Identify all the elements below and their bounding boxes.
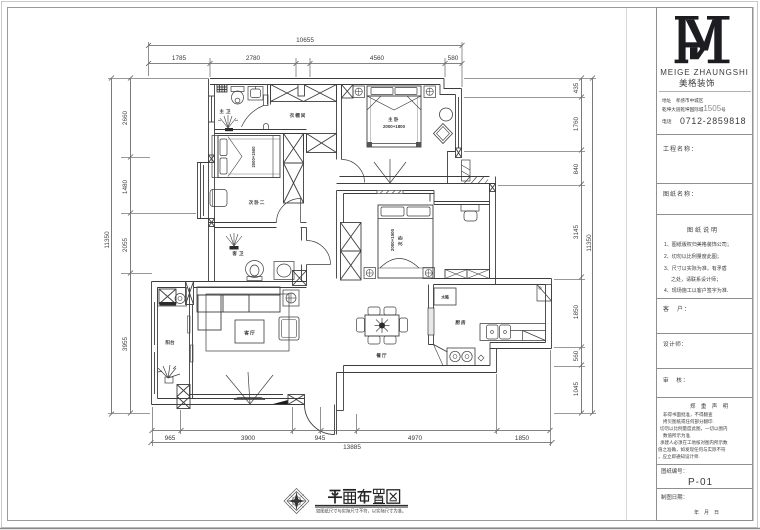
svg-text:945: 945 bbox=[315, 435, 326, 442]
svg-text:非得书面批准，不得翻查: 非得书面批准，不得翻查 bbox=[663, 411, 713, 418]
svg-text:2000+1500: 2000+1500 bbox=[390, 228, 395, 251]
svg-text:1、图纸版权归美格装饰公司；: 1、图纸版权归美格装饰公司； bbox=[664, 241, 732, 248]
svg-text:图纸说明: 图纸说明 bbox=[687, 226, 719, 234]
svg-text:2055: 2055 bbox=[122, 237, 129, 252]
svg-text:P-01: P-01 bbox=[688, 477, 713, 488]
svg-text:0712-2859818: 0712-2859818 bbox=[680, 116, 746, 126]
svg-text:4970: 4970 bbox=[408, 435, 423, 442]
svg-text:4560: 4560 bbox=[370, 55, 385, 62]
svg-text:2、切勿以比例量度此图；: 2、切勿以比例量度此图； bbox=[664, 253, 722, 260]
svg-text:客卫: 客卫 bbox=[231, 250, 245, 257]
svg-text:厨房: 厨房 bbox=[455, 319, 466, 326]
svg-text:图纸名称：: 图纸名称： bbox=[663, 190, 698, 198]
svg-text:13885: 13885 bbox=[343, 444, 361, 451]
svg-text:数值所示为准.: 数值所示为准. bbox=[663, 432, 691, 439]
svg-text:1760: 1760 bbox=[573, 116, 580, 131]
svg-text:次卧二: 次卧二 bbox=[249, 199, 266, 206]
svg-text:工程名称：: 工程名称： bbox=[663, 145, 698, 153]
svg-text:郑 重 声 明: 郑 重 声 明 bbox=[690, 402, 730, 410]
svg-text:拷贝图纸或任何部分翻印.: 拷贝图纸或任何部分翻印. bbox=[663, 418, 714, 425]
svg-text:电话: 电话 bbox=[662, 118, 672, 125]
svg-text:主卧: 主卧 bbox=[388, 116, 400, 123]
svg-text:1850: 1850 bbox=[573, 304, 580, 319]
svg-text:图纸编号：: 图纸编号： bbox=[661, 467, 688, 475]
svg-text:580: 580 bbox=[448, 55, 459, 62]
svg-text:2660: 2660 bbox=[122, 110, 129, 125]
svg-text:3955: 3955 bbox=[122, 336, 129, 351]
svg-text:1045: 1045 bbox=[573, 381, 580, 396]
svg-text:11350: 11350 bbox=[586, 234, 593, 252]
svg-text:3、尺寸以实际为准，有矛盾: 3、尺寸以实际为准，有矛盾 bbox=[664, 265, 727, 272]
svg-text:美格装饰: 美格装饰 bbox=[679, 78, 715, 88]
svg-text:餐厅: 餐厅 bbox=[375, 352, 387, 359]
svg-text:地址 孝感市中城区: 地址 孝感市中城区 bbox=[662, 97, 704, 104]
svg-text:3900: 3900 bbox=[241, 435, 256, 442]
svg-text:965: 965 bbox=[165, 435, 176, 442]
svg-text:设计师：: 设计师： bbox=[663, 340, 687, 348]
svg-text:435: 435 bbox=[573, 82, 580, 93]
svg-text:11350: 11350 bbox=[104, 231, 111, 249]
svg-text:审 核：: 审 核： bbox=[663, 376, 689, 384]
svg-text:次卧: 次卧 bbox=[397, 234, 404, 246]
svg-text:水箱: 水箱 bbox=[440, 295, 449, 300]
svg-text:1480: 1480 bbox=[122, 179, 129, 194]
svg-text:如图纸尺寸与实际尺寸不符，以实际尺寸为准。: 如图纸尺寸与实际尺寸不符，以实际尺寸为准。 bbox=[316, 508, 406, 515]
svg-text:切勿以比例量度此图，一切以图内: 切勿以比例量度此图，一切以图内 bbox=[660, 425, 728, 432]
svg-text:840: 840 bbox=[573, 163, 580, 174]
svg-text:客厅: 客厅 bbox=[243, 330, 256, 337]
svg-text:，应立即通知设计师.: ，应立即通知设计师. bbox=[658, 453, 700, 460]
svg-text:3145: 3145 bbox=[573, 224, 580, 239]
svg-text:2000+1500: 2000+1500 bbox=[251, 146, 256, 168]
svg-text:阳台: 阳台 bbox=[165, 339, 175, 346]
svg-text:客 户：: 客 户： bbox=[663, 305, 691, 313]
svg-text:560: 560 bbox=[573, 350, 580, 361]
svg-text:主卫: 主卫 bbox=[219, 108, 232, 115]
svg-text:值之准确，如发现任何与实际不符: 值之准确，如发现任何与实际不符 bbox=[658, 446, 726, 453]
svg-text:年 月 日: 年 月 日 bbox=[694, 509, 719, 516]
svg-text:之处，请联系设计师；: 之处，请联系设计师； bbox=[671, 276, 721, 283]
svg-text:制图日期：: 制图日期： bbox=[661, 493, 688, 501]
svg-text:2780: 2780 bbox=[246, 55, 261, 62]
svg-text:MEIGE ZHAUNGSHI: MEIGE ZHAUNGSHI bbox=[660, 68, 749, 77]
svg-text:衣帽间: 衣帽间 bbox=[290, 112, 307, 119]
svg-text:1785: 1785 bbox=[172, 55, 187, 62]
svg-text:2000+1800: 2000+1800 bbox=[383, 124, 406, 129]
svg-text:1850: 1850 bbox=[515, 435, 530, 442]
svg-text:4、现场施工以客户签字为准.: 4、现场施工以客户签字为准. bbox=[664, 287, 728, 294]
svg-text:承建人必须在工地核对图内所示数: 承建人必须在工地核对图内所示数 bbox=[660, 439, 728, 446]
svg-text:10655: 10655 bbox=[296, 37, 314, 44]
